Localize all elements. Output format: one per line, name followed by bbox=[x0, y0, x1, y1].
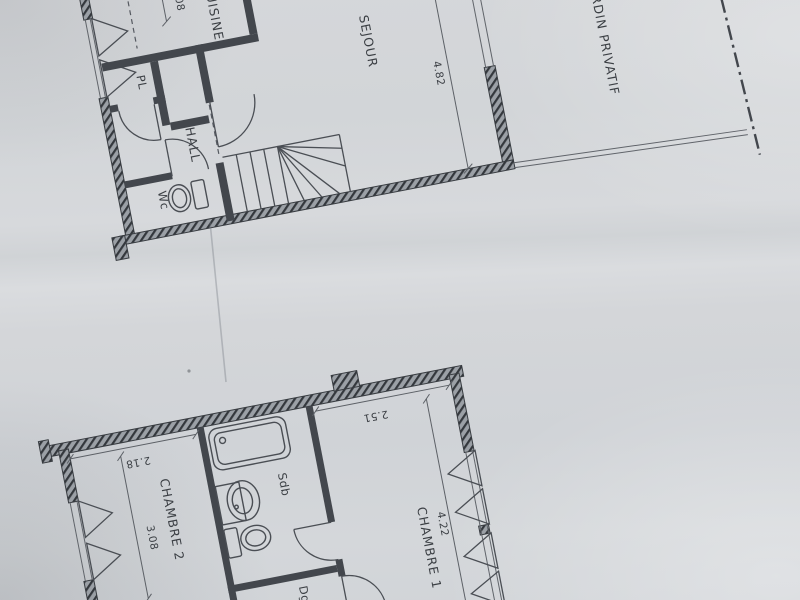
dimension-text-chambre2-width: 2.18 bbox=[125, 454, 152, 471]
room-label-sdb: Sdb bbox=[275, 472, 293, 498]
window-symbol-chambre1 bbox=[445, 450, 506, 600]
exterior-wall bbox=[59, 449, 79, 503]
garden-area: JARDIN PRIVATIF bbox=[483, 0, 760, 201]
dimension-text-chambre1-length: 4.22 bbox=[434, 511, 451, 538]
partition-wall bbox=[227, 565, 337, 593]
door-swing-sdb bbox=[294, 522, 339, 567]
partition-wall bbox=[101, 33, 259, 71]
door-swing-pl bbox=[119, 104, 161, 146]
toilet-symbol-wc bbox=[166, 179, 209, 214]
dimension-text-cuisine: 3.08 bbox=[170, 0, 187, 12]
exterior-wall bbox=[45, 365, 463, 457]
toilet-symbol-sdb bbox=[224, 521, 274, 558]
room-label-degagement: Dgt bbox=[296, 584, 314, 600]
exterior-wall bbox=[449, 373, 474, 452]
room-label-hall: HALL bbox=[182, 126, 204, 164]
partition-wall bbox=[195, 44, 214, 103]
exterior-wall bbox=[84, 580, 115, 600]
partition-wall bbox=[335, 559, 345, 577]
terrace-edge-line bbox=[515, 123, 748, 180]
exterior-wall bbox=[119, 160, 515, 246]
dashed-line bbox=[209, 105, 219, 158]
dimension-line-sejour bbox=[427, 0, 474, 173]
wall-face-line bbox=[468, 0, 493, 66]
exterior-wall bbox=[99, 97, 136, 241]
upper-floor-plan: CHAMBRE 2 Sdb CHAMBRE 1 Dgt 2.18 3.08 2.… bbox=[37, 351, 512, 600]
partition-wall bbox=[110, 104, 119, 112]
partition-wall bbox=[124, 172, 172, 188]
paper-artifacts bbox=[187, 222, 226, 382]
window-symbol-cuisine bbox=[85, 12, 139, 98]
door-swing-chambre1 bbox=[342, 569, 387, 600]
terrace-edge-line bbox=[514, 118, 747, 175]
paper-speck bbox=[187, 369, 190, 372]
window-symbol-chambre2 bbox=[70, 495, 124, 581]
floor-plan-photo: CUISINE PL HALL Wc SEJOUR 4.82 3.08 JARD… bbox=[0, 0, 800, 600]
ground-floor-plan: CUISINE PL HALL Wc SEJOUR 4.82 3.08 bbox=[62, 0, 517, 260]
dimension-line-cuisine bbox=[151, 0, 172, 26]
room-label-cuisine: CUISINE bbox=[201, 0, 227, 42]
room-label-wc: Wc bbox=[155, 190, 172, 211]
partition-wall bbox=[216, 162, 235, 221]
partition-wall bbox=[233, 0, 257, 35]
door-swing-hall-sejour bbox=[210, 94, 263, 147]
room-label-placard: PL bbox=[133, 74, 150, 91]
bay-window-wall bbox=[484, 66, 513, 162]
exterior-wall bbox=[76, 0, 92, 20]
partition-wall bbox=[306, 406, 335, 523]
paper-crease bbox=[210, 222, 226, 382]
area-label-jardin: JARDIN PRIVATIF bbox=[586, 0, 623, 97]
washbasin-symbol bbox=[215, 478, 263, 525]
dimension-text-sejour: 4.82 bbox=[430, 60, 447, 87]
room-label-sejour: SEJOUR bbox=[356, 14, 381, 69]
floor-plan-drawing: CUISINE PL HALL Wc SEJOUR 4.82 3.08 JARD… bbox=[0, 0, 800, 600]
wall-pier bbox=[38, 440, 52, 464]
dashed-line bbox=[128, 1, 137, 48]
dimension-text-chambre1-width: 2.51 bbox=[362, 408, 389, 425]
wall-face-line bbox=[460, 0, 485, 67]
partition-wall bbox=[150, 61, 170, 126]
room-label-chambre2: CHAMBRE 2 bbox=[157, 477, 188, 562]
dimension-text-chambre2-length: 3.08 bbox=[144, 524, 161, 551]
